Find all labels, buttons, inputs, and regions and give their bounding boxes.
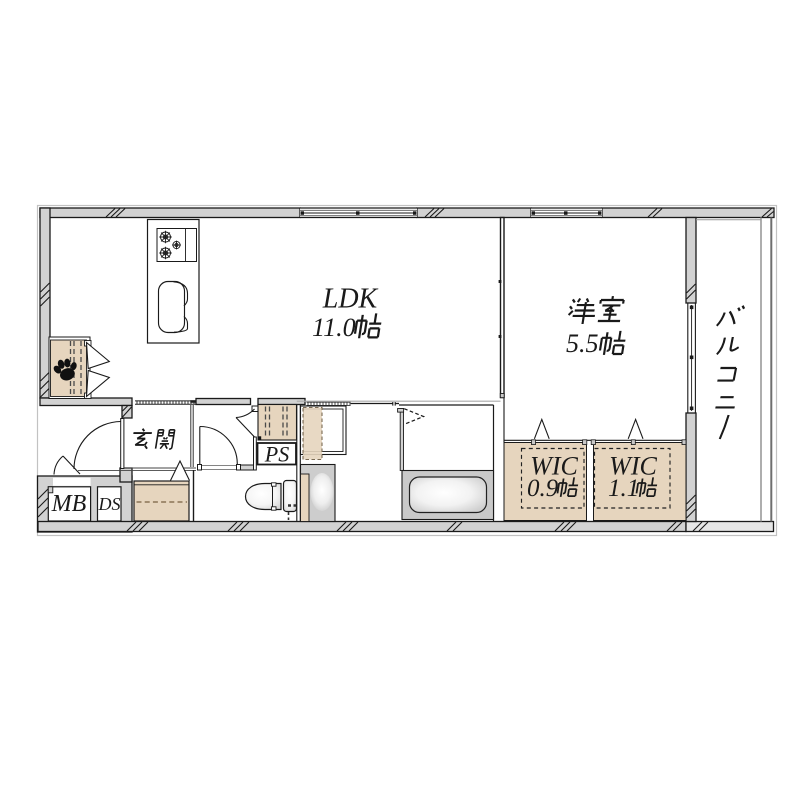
svg-text:1.1: 1.1: [608, 475, 639, 502]
svg-text:MB: MB: [51, 491, 87, 517]
svg-text:LDK: LDK: [322, 284, 379, 315]
svg-text:DS: DS: [98, 494, 121, 514]
svg-text:0.9: 0.9: [527, 475, 559, 502]
svg-text:11.0: 11.0: [312, 313, 356, 342]
svg-text:PS: PS: [264, 442, 289, 467]
svg-text:5.5: 5.5: [566, 329, 599, 358]
